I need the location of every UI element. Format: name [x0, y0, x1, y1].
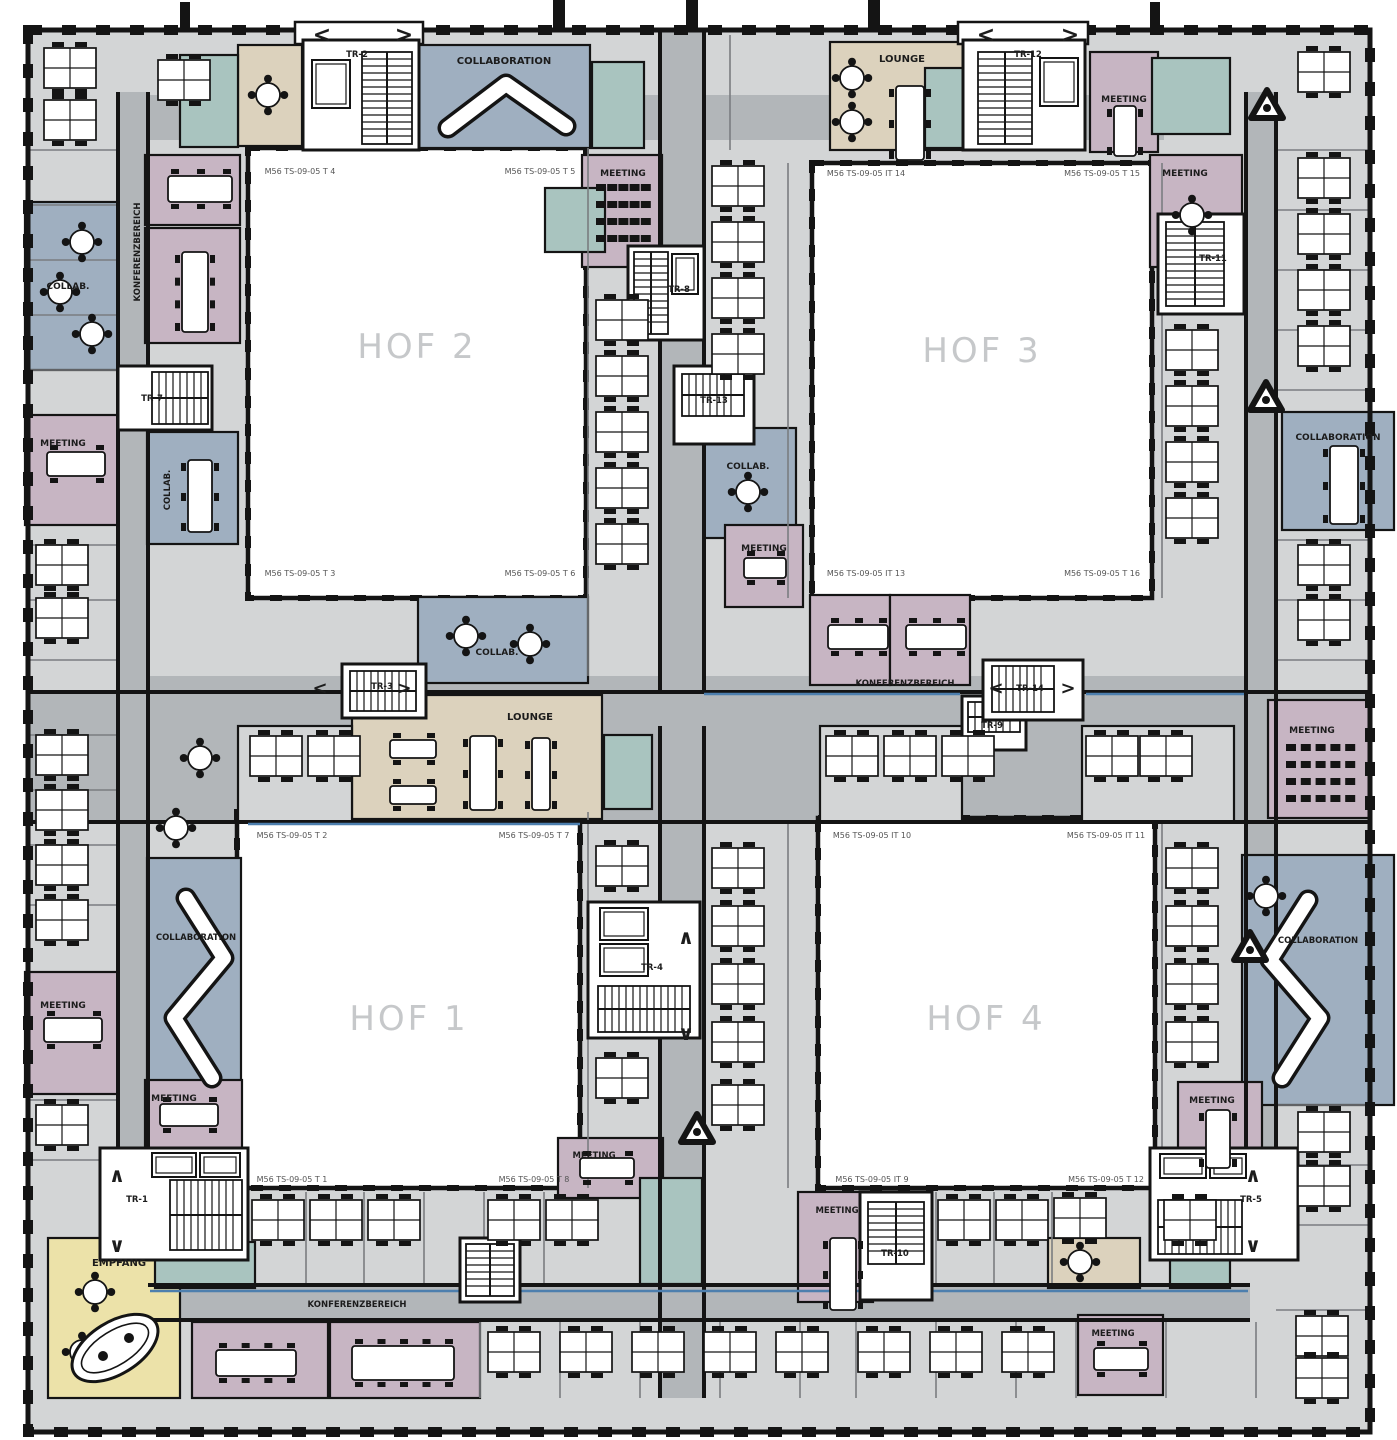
chair: [1306, 539, 1318, 544]
plan-label: LOUNGE: [507, 712, 553, 723]
chair: [498, 801, 503, 809]
chair: [264, 75, 272, 83]
plan-label: LOUNGE: [879, 54, 925, 65]
chair: [627, 341, 639, 346]
plan-label: TR-1: [126, 1195, 148, 1205]
plan-label: MEETING: [1289, 726, 1335, 736]
chair: [1094, 777, 1106, 782]
seminar-seat: [1345, 761, 1355, 768]
chair: [1117, 777, 1129, 782]
chair: [743, 272, 755, 277]
desk-cluster: [712, 842, 764, 894]
plan-label: ∧: [678, 925, 694, 949]
chair: [1306, 594, 1318, 599]
chair: [189, 101, 201, 106]
elevator: [312, 60, 350, 108]
chair: [88, 346, 96, 354]
seminar-seat: [618, 201, 628, 208]
chair: [1262, 876, 1270, 884]
chair: [889, 120, 894, 128]
chair: [879, 618, 887, 623]
chair: [720, 375, 732, 380]
chair: [376, 1241, 388, 1246]
desk-cluster: [1166, 492, 1218, 544]
chair: [423, 1382, 431, 1387]
chair: [1304, 1352, 1316, 1357]
desk-cluster: [596, 462, 648, 514]
chair: [627, 453, 639, 458]
chair: [316, 777, 328, 782]
chair: [378, 1382, 386, 1387]
chair: [604, 350, 616, 355]
chair: [1195, 1194, 1207, 1199]
chair: [831, 618, 839, 623]
chair: [1197, 371, 1209, 376]
chair: [627, 1052, 639, 1057]
desk-cluster: [1298, 46, 1350, 98]
chair: [318, 1194, 330, 1199]
chair: [743, 889, 755, 894]
plan-label: ∨: [109, 1233, 125, 1257]
chair: [832, 74, 840, 82]
chair: [663, 1373, 675, 1378]
chair: [399, 1194, 411, 1199]
plan-label: MEETING: [40, 1001, 86, 1011]
seminar-seat: [1316, 795, 1326, 802]
chair: [604, 565, 616, 570]
chair: [1076, 1242, 1084, 1250]
chair: [1304, 1399, 1316, 1404]
chair: [1197, 324, 1209, 329]
chair: [62, 238, 70, 246]
chair: [1197, 1016, 1209, 1021]
seminar-seat: [1301, 761, 1311, 768]
seminar-seat: [630, 218, 640, 225]
chair: [44, 776, 56, 781]
plan-label: <: [977, 23, 995, 48]
plan-label: M56 TS-09-05 IT 11: [1067, 831, 1145, 840]
desk-cluster: [308, 730, 360, 782]
plan-label: M56 TS-09-05 T 2: [257, 831, 328, 840]
chair: [44, 592, 56, 597]
plan-label: M56 TS-09-05 T 16: [1064, 569, 1140, 578]
chair: [834, 777, 846, 782]
seminar-seat: [607, 235, 617, 242]
chair: [393, 806, 401, 811]
chair: [735, 1326, 747, 1331]
chair: [1195, 1241, 1207, 1246]
chair: [223, 169, 231, 174]
survey-tick: [868, 0, 880, 30]
plan-label: KONFERENZBEREICH: [133, 203, 143, 302]
seminar-seat: [1286, 761, 1296, 768]
desk-cluster: [1164, 1194, 1216, 1246]
chair: [1174, 842, 1186, 847]
plan-label: KONFERENZBEREICH: [856, 679, 955, 689]
plan-label: M56 TS-09-05 T 15: [1064, 169, 1140, 178]
chair: [1172, 1194, 1184, 1199]
chair: [743, 1079, 755, 1084]
chair: [462, 648, 470, 656]
chair: [496, 1373, 508, 1378]
room-wc-5: [592, 62, 644, 148]
chair: [1329, 255, 1341, 260]
chair: [864, 74, 872, 82]
chair: [378, 1339, 386, 1344]
chair: [214, 523, 219, 531]
chair: [743, 375, 755, 380]
chair: [212, 754, 220, 762]
plan-label: M56 TS-09-05 T 5: [505, 167, 576, 176]
chair: [604, 462, 616, 467]
chair: [1188, 195, 1196, 203]
desk-cluster: [938, 1194, 990, 1246]
chair: [44, 729, 56, 734]
plan-label: TR-2: [346, 50, 368, 60]
plan-label: TR-10: [881, 1249, 909, 1259]
chair: [445, 1339, 453, 1344]
desk-cluster: [1140, 730, 1192, 782]
chair: [823, 1241, 828, 1249]
plan-label: EMPFANG: [92, 1258, 146, 1269]
chair: [1010, 1326, 1022, 1331]
chair: [1232, 1159, 1237, 1167]
seminar-seat: [641, 201, 651, 208]
desk-cluster: [712, 160, 764, 212]
desk-cluster: [44, 94, 96, 146]
chair: [640, 1373, 652, 1378]
chair: [743, 958, 755, 963]
chair: [1076, 1274, 1084, 1282]
plan-label: MEETING: [1162, 169, 1208, 179]
chair: [743, 216, 755, 221]
chair: [720, 900, 732, 905]
chair: [44, 831, 56, 836]
chair: [67, 839, 79, 844]
corridor: [704, 676, 1244, 692]
chair: [260, 1194, 272, 1199]
seminar-seat: [618, 235, 628, 242]
chair: [823, 1301, 828, 1309]
chair: [720, 889, 732, 894]
chair: [1197, 947, 1209, 952]
chair: [242, 1343, 250, 1348]
chair: [933, 651, 941, 656]
chair: [219, 1378, 227, 1383]
chair: [318, 1241, 330, 1246]
chair: [172, 808, 180, 816]
chair: [1306, 1153, 1318, 1158]
desk-cluster: [36, 539, 88, 591]
chair: [855, 618, 863, 623]
chair: [915, 730, 927, 735]
chair: [720, 958, 732, 963]
chair: [743, 900, 755, 905]
desk-cluster: [1298, 152, 1350, 204]
desk-cluster: [368, 1194, 420, 1246]
chair: [341, 1241, 353, 1246]
chair: [526, 656, 534, 664]
chair: [1329, 586, 1341, 591]
chair: [1329, 46, 1341, 51]
chair: [823, 1271, 828, 1279]
stairwell-tr-7: [118, 366, 212, 430]
chair: [1306, 46, 1318, 51]
chair: [627, 350, 639, 355]
seminar-seat: [1316, 761, 1326, 768]
plan-label: <: [313, 23, 331, 48]
chair: [1174, 483, 1186, 488]
chair: [552, 771, 557, 779]
chair: [281, 730, 293, 735]
chair: [720, 947, 732, 952]
chair: [496, 1326, 508, 1331]
floor-plan: HOF 2HOF 3HOF 1HOF 4COLLABORATIONLOUNGET…: [0, 0, 1397, 1440]
chair: [720, 1079, 732, 1084]
chair: [743, 160, 755, 165]
chair: [1085, 1192, 1097, 1197]
chair: [1197, 539, 1209, 544]
chair: [909, 618, 917, 623]
chair: [627, 565, 639, 570]
chair: [857, 730, 869, 735]
plan-label: <: [988, 678, 1003, 699]
chair: [264, 1343, 272, 1348]
chair: [777, 580, 785, 585]
plan-label: <: [312, 678, 327, 699]
chair: [640, 1326, 652, 1331]
chair: [210, 255, 215, 263]
courtyard-hof-4: HOF 4: [818, 818, 1155, 1188]
chair: [264, 107, 272, 115]
chair: [75, 94, 87, 99]
chair: [1329, 199, 1341, 204]
plan-label: M56 TS-09-05 IT 9: [835, 1175, 908, 1184]
plan-label: COLLABORATION: [1278, 936, 1358, 946]
plan-label: MEETING: [151, 1094, 197, 1104]
survey-tick: [686, 0, 698, 30]
plan-label: M56 TS-09-05 T 4: [265, 167, 336, 176]
chair: [1306, 1160, 1318, 1165]
chair: [1174, 371, 1186, 376]
chair: [67, 639, 79, 644]
chair: [47, 1011, 55, 1016]
chair: [214, 493, 219, 501]
chair: [568, 1326, 580, 1331]
plan-label: M56 TS-09-05 IT 10: [833, 831, 911, 840]
chair: [44, 941, 56, 946]
chair: [1060, 1258, 1068, 1266]
chair: [946, 1194, 958, 1199]
chair: [627, 509, 639, 514]
plan-label: MEETING: [1189, 1096, 1235, 1106]
chair: [171, 204, 179, 209]
chair: [1174, 380, 1186, 385]
desk-cluster: [44, 42, 96, 94]
chair: [355, 1339, 363, 1344]
desk-cluster: [158, 54, 210, 106]
chair: [743, 1016, 755, 1021]
chair: [1174, 947, 1186, 952]
chair: [75, 1288, 83, 1296]
chair: [67, 886, 79, 891]
chair: [915, 777, 927, 782]
chair: [283, 1241, 295, 1246]
chair: [525, 771, 530, 779]
chair: [627, 518, 639, 523]
room-wc-2: [925, 68, 967, 148]
chair: [1329, 264, 1341, 269]
chair: [463, 801, 468, 809]
desk-cluster: [712, 328, 764, 380]
chair: [743, 1063, 755, 1068]
chair: [848, 102, 856, 110]
desk-cluster: [252, 1194, 304, 1246]
plan-label: ∨: [1245, 1233, 1261, 1257]
chair: [554, 1241, 566, 1246]
chair: [866, 1373, 878, 1378]
chair: [604, 397, 616, 402]
seminar-seat: [1330, 744, 1340, 751]
plan-label: M56 TS-09-05 IT 14: [827, 169, 905, 178]
seminar-seat: [630, 201, 640, 208]
chair: [496, 1194, 508, 1199]
chair: [933, 618, 941, 623]
chair: [1094, 730, 1106, 735]
desk-cluster: [996, 1194, 1048, 1246]
desk-cluster: [1296, 1310, 1348, 1362]
seminar-seat: [630, 184, 640, 191]
chair: [831, 651, 839, 656]
chair: [1148, 730, 1160, 735]
chair: [909, 651, 917, 656]
plan-label: ∨: [678, 1021, 694, 1045]
chair: [156, 824, 164, 832]
chair: [663, 1326, 675, 1331]
chair: [1306, 586, 1318, 591]
chair: [625, 1180, 633, 1185]
chair: [712, 1373, 724, 1378]
chair: [627, 1099, 639, 1104]
chair: [1329, 367, 1341, 372]
chair: [1304, 1310, 1316, 1315]
chair: [88, 314, 96, 322]
chair: [1004, 1241, 1016, 1246]
chair: [604, 1052, 616, 1057]
chair: [91, 1272, 99, 1280]
seminar-seat: [1286, 778, 1296, 785]
plan-label: M56 TS-09-05 T 6: [505, 569, 576, 578]
chair: [78, 222, 86, 230]
chair: [181, 493, 186, 501]
chair: [248, 91, 256, 99]
chair: [784, 1326, 796, 1331]
chair: [283, 1194, 295, 1199]
chair: [427, 733, 435, 738]
chair: [832, 118, 840, 126]
plan-label: >: [1061, 23, 1079, 48]
chair: [44, 586, 56, 591]
chair: [889, 1373, 901, 1378]
chair: [44, 886, 56, 891]
chair: [393, 760, 401, 765]
chair: [834, 730, 846, 735]
chair: [1327, 1352, 1339, 1357]
chair: [1174, 492, 1186, 497]
plan-label: M56 TS-09-05 T 8: [499, 1175, 570, 1184]
chair: [210, 278, 215, 286]
plan-label: MEETING: [40, 439, 86, 449]
desk-cluster: [310, 1194, 362, 1246]
desk-cluster: [1298, 320, 1350, 372]
desk-cluster: [560, 1326, 612, 1378]
chair: [67, 1146, 79, 1151]
seminar-seat: [641, 184, 651, 191]
chair: [258, 777, 270, 782]
plan-label: TR-7: [141, 394, 163, 404]
chair: [209, 1128, 217, 1133]
chair: [400, 1339, 408, 1344]
plan-label: COLLABORATION: [457, 56, 552, 67]
chair: [720, 272, 732, 277]
desk-cluster: [596, 406, 648, 458]
chair: [210, 300, 215, 308]
chair: [1329, 1160, 1341, 1165]
chair: [67, 586, 79, 591]
courtyard-label: HOF 1: [349, 999, 468, 1039]
chair: [1174, 1016, 1186, 1021]
chair: [181, 463, 186, 471]
chair: [78, 254, 86, 262]
chair: [67, 894, 79, 899]
chair: [258, 730, 270, 735]
chair: [744, 472, 752, 480]
chair: [72, 330, 80, 338]
chair: [743, 1005, 755, 1010]
chair: [339, 730, 351, 735]
chair: [1174, 1005, 1186, 1010]
chair: [210, 323, 215, 331]
chair: [957, 618, 965, 623]
chair: [376, 1194, 388, 1199]
chair: [552, 741, 557, 749]
chair: [47, 1044, 55, 1049]
seminar-seat: [1301, 744, 1311, 751]
chair: [1306, 93, 1318, 98]
chair: [946, 1241, 958, 1246]
chair: [627, 397, 639, 402]
plan-label: ∧: [109, 1163, 125, 1187]
desk-cluster: [712, 900, 764, 952]
chair: [393, 733, 401, 738]
desk-cluster: [1298, 264, 1350, 316]
chair: [1329, 594, 1341, 599]
chair: [1262, 908, 1270, 916]
chair: [1204, 211, 1212, 219]
chair: [760, 488, 768, 496]
chair: [969, 1241, 981, 1246]
chair: [627, 887, 639, 892]
chair: [1174, 889, 1186, 894]
plan-label: M56 TS-09-05 T 7: [499, 831, 570, 840]
chair: [219, 1343, 227, 1348]
chair: [1197, 483, 1209, 488]
chair: [1138, 109, 1143, 117]
chair: [519, 1373, 531, 1378]
chair: [1138, 147, 1143, 155]
chair: [196, 738, 204, 746]
desk-cluster: [826, 730, 878, 782]
